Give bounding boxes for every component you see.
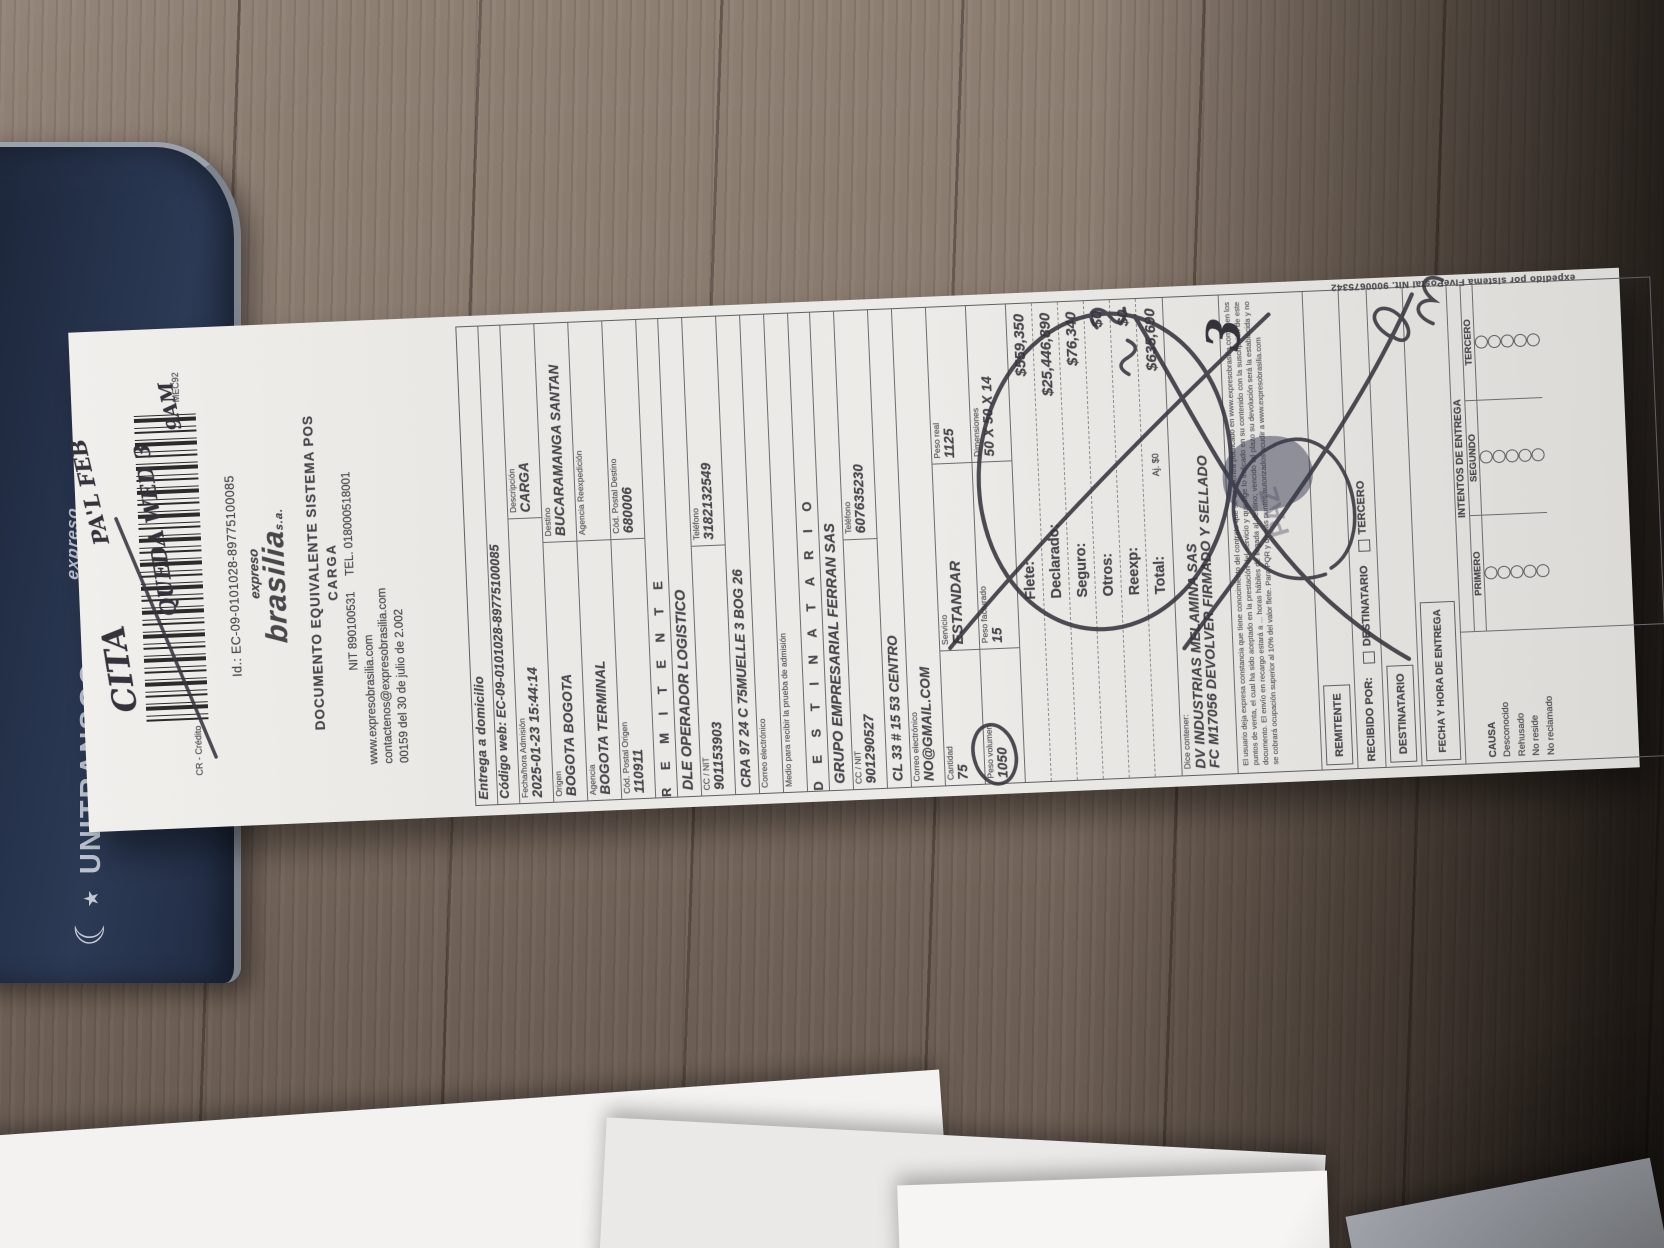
- pen-digit-3: 3: [1195, 316, 1252, 353]
- photo-scene: ☾⋆ UNITRANSCO s.a. expreso brasilias.a. …: [0, 0, 1664, 1248]
- pen-underline: [116, 515, 216, 761]
- pen-circle-cantidad: [967, 720, 1023, 789]
- pen-squiggle: [1120, 340, 1136, 375]
- crescent-moon-icon: ☾⋆: [71, 886, 111, 947]
- pen-squiggle: [1417, 277, 1444, 324]
- pen-circle-charges: [967, 304, 1244, 639]
- waybill-receipt: CITA PA'L FEB QUEDA WED 3 9AM CR - Crédi…: [68, 268, 1640, 833]
- pen-marks-overlay: 3 PAZ: [68, 268, 1640, 833]
- pen-digit2: [1091, 308, 1126, 328]
- loose-paper-gray: [1345, 1158, 1664, 1248]
